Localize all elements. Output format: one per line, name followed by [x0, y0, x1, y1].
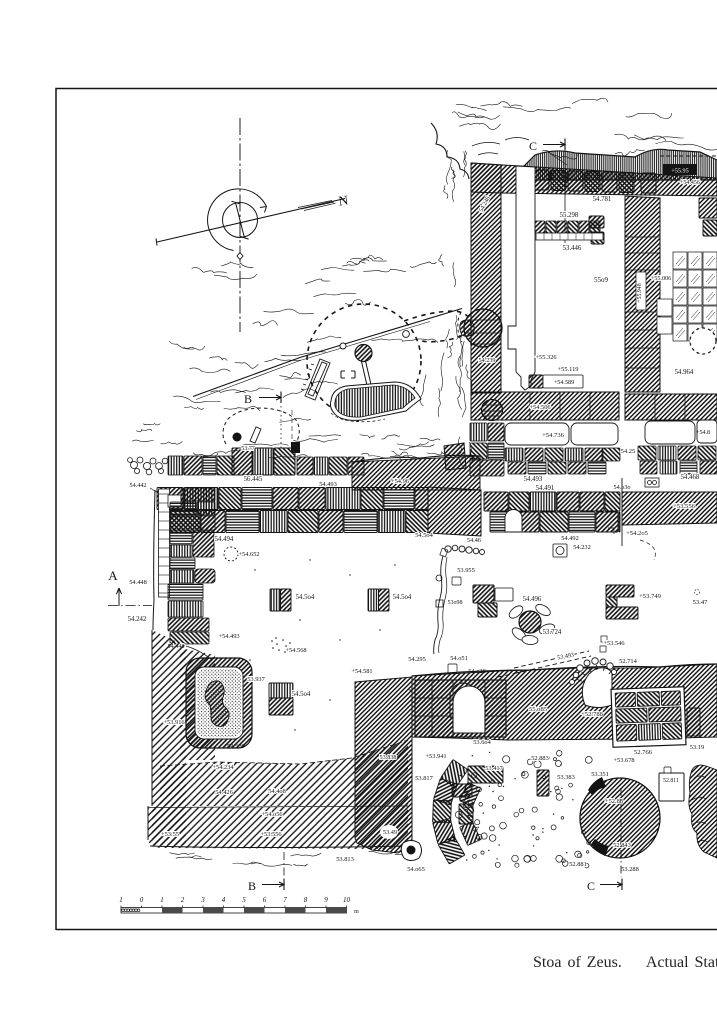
svg-text:+54.456: +54.456: [680, 180, 700, 186]
svg-text:53ο98: 53ο98: [448, 600, 463, 606]
svg-text:8: 8: [304, 896, 308, 904]
svg-text:53.49: 53.49: [383, 829, 397, 836]
svg-text:+53.678: +53.678: [613, 757, 634, 764]
svg-text:52.881: 52.881: [569, 861, 587, 868]
svg-text:54.5ο4: 54.5ο4: [393, 594, 412, 601]
svg-text:C: C: [529, 139, 537, 153]
svg-text:Stoa of Zeus. Actual State: Stoa of Zeus. Actual State: [533, 954, 717, 971]
svg-text:+54.568: +54.568: [285, 647, 306, 654]
svg-text:+53.916: +53.916: [163, 719, 184, 726]
svg-text:+53.55: +53.55: [161, 831, 179, 838]
svg-text:+54.652: +54.652: [238, 551, 259, 558]
svg-text:53.446: 53.446: [563, 245, 582, 252]
svg-text:54.25: 54.25: [621, 448, 635, 455]
svg-text:53.6ο4: 53.6ο4: [473, 739, 491, 746]
svg-text:54.493: 54.493: [319, 481, 337, 488]
svg-text:52.883: 52.883: [531, 755, 549, 762]
svg-text:54.295: 54.295: [408, 656, 426, 663]
svg-text:+54.506: +54.506: [529, 404, 550, 411]
svg-text:53.351: 53.351: [591, 771, 609, 778]
svg-text:7: 7: [283, 896, 287, 904]
svg-text:54.ο51: 54.ο51: [450, 655, 468, 662]
svg-text:5: 5: [242, 896, 246, 904]
svg-text:+54.589: +54.589: [554, 379, 575, 386]
svg-text:m: m: [354, 909, 359, 915]
svg-text:54.496: 54.496: [523, 596, 542, 603]
svg-text:53.47: 53.47: [693, 599, 709, 606]
svg-text:+52.788: +52.788: [581, 711, 604, 718]
svg-text:54.ο65: 54.ο65: [407, 866, 425, 873]
svg-text:54.239: 54.239: [478, 357, 495, 364]
svg-text:52.766: 52.766: [634, 749, 653, 756]
svg-text:55.ο85: 55.ο85: [529, 706, 548, 713]
svg-text:54.494: 54.494: [215, 536, 234, 543]
svg-text:53.19: 53.19: [690, 744, 704, 751]
svg-text:54.493: 54.493: [524, 476, 543, 483]
svg-text:53.724: 53.724: [543, 629, 562, 636]
svg-text:+55.006: +55.006: [651, 275, 672, 282]
svg-text:53.955: 53.955: [457, 567, 475, 574]
svg-text:+54.493: +54.493: [218, 633, 239, 640]
svg-text:9: 9: [324, 896, 328, 904]
svg-text:B: B: [248, 879, 256, 893]
svg-text:C: C: [587, 879, 595, 893]
svg-text:2: 2: [181, 896, 185, 904]
svg-text:54.781: 54.781: [593, 196, 612, 203]
svg-text:54.5ο4: 54.5ο4: [415, 532, 433, 539]
svg-text:+53.556: +53.556: [673, 503, 696, 510]
svg-text:54.448: 54.448: [129, 579, 147, 586]
svg-text:55.298: 55.298: [560, 212, 579, 219]
svg-text:3: 3: [200, 896, 205, 904]
svg-text:53.383: 53.383: [557, 774, 575, 781]
svg-text:+54.234: +54.234: [212, 764, 234, 771]
svg-text:B: B: [244, 392, 252, 406]
svg-text:54.492: 54.492: [561, 535, 579, 542]
svg-text:+55.95: +55.95: [671, 168, 688, 175]
svg-text:+55.326: +55.326: [535, 354, 556, 361]
svg-text:52.811: 52.811: [663, 778, 679, 784]
svg-text:A: A: [108, 568, 118, 583]
svg-text:+52.88: +52.88: [605, 798, 623, 805]
svg-text:+54.736: +54.736: [542, 432, 565, 439]
svg-text:+53.546: +53.546: [603, 640, 624, 647]
svg-text:53.838: 53.838: [379, 754, 396, 761]
svg-text:54.964: 54.964: [675, 369, 694, 376]
svg-text:+54.ο56: +54.ο56: [261, 811, 282, 818]
svg-text:0: 0: [140, 896, 144, 904]
svg-text:56.445: 56.445: [244, 476, 263, 483]
svg-text:+53.556: +53.556: [260, 831, 281, 838]
svg-text:53.77: 53.77: [241, 446, 255, 452]
svg-text:54.232: 54.232: [573, 544, 591, 551]
svg-text:54.5ο4: 54.5ο4: [292, 691, 311, 698]
svg-text:54.426: 54.426: [215, 789, 233, 796]
svg-text:52.843: 52.843: [613, 842, 631, 849]
svg-text:54.46: 54.46: [467, 537, 481, 544]
svg-text:+55.948: +55.948: [637, 283, 643, 302]
svg-text:54.5ο4: 54.5ο4: [296, 594, 315, 601]
svg-text:54.491: 54.491: [536, 485, 555, 492]
svg-text:53.417: 53.417: [485, 765, 503, 772]
svg-text:+54.96: +54.96: [391, 478, 409, 485]
svg-text:+55.119: +55.119: [558, 366, 579, 373]
svg-text:53.817: 53.817: [415, 775, 433, 782]
svg-text:55ο9: 55ο9: [594, 276, 609, 284]
svg-text:1: 1: [160, 896, 164, 904]
svg-text:1: 1: [119, 896, 123, 904]
svg-text:53.937: 53.937: [247, 676, 265, 683]
svg-text:54.4ο8: 54.4ο8: [268, 788, 286, 795]
svg-text:6: 6: [263, 896, 267, 904]
svg-text:54.242: 54.242: [128, 616, 147, 623]
svg-text:53.813: 53.813: [336, 856, 354, 863]
svg-text:+54.2ο5: +54.2ο5: [626, 530, 649, 537]
svg-text:4: 4: [222, 896, 226, 904]
svg-text:52.714: 52.714: [619, 658, 637, 665]
svg-text:54.442: 54.442: [129, 482, 146, 489]
svg-text:10: 10: [343, 896, 351, 904]
svg-text:+54.8: +54.8: [696, 429, 710, 436]
svg-text:+53.941: +53.941: [425, 753, 446, 760]
svg-text:53.288: 53.288: [621, 866, 639, 873]
svg-text:54.468: 54.468: [681, 474, 700, 481]
svg-text:+54.581: +54.581: [351, 668, 372, 675]
svg-text:+53.749: +53.749: [639, 593, 662, 600]
